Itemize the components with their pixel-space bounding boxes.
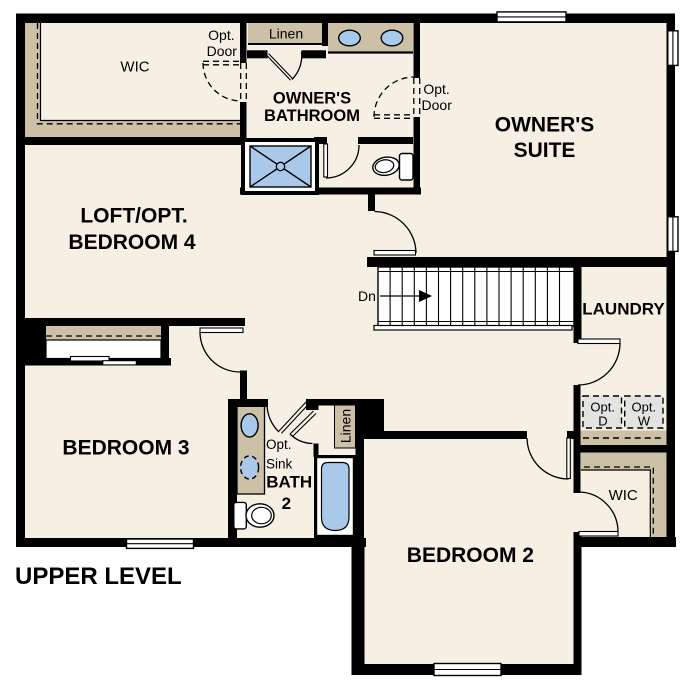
svg-text:W: W: [638, 414, 651, 429]
svg-text:Door: Door: [422, 97, 453, 113]
svg-text:WIC: WIC: [609, 487, 638, 504]
svg-text:LAUNDRY: LAUNDRY: [582, 300, 665, 319]
svg-text:WIC: WIC: [120, 59, 149, 76]
svg-text:Linen: Linen: [269, 26, 303, 42]
svg-text:BEDROOM 4: BEDROOM 4: [68, 231, 196, 254]
svg-text:OWNER'S: OWNER'S: [495, 114, 595, 137]
svg-text:2: 2: [282, 494, 291, 513]
svg-text:BEDROOM 2: BEDROOM 2: [407, 544, 534, 567]
svg-text:SUITE: SUITE: [514, 139, 576, 162]
svg-text:Linen: Linen: [338, 409, 354, 443]
svg-text:Opt.: Opt.: [590, 400, 615, 415]
svg-text:BATH: BATH: [266, 473, 312, 492]
svg-text:Sink: Sink: [266, 457, 293, 472]
svg-text:Dn: Dn: [358, 288, 376, 304]
svg-text:LOFT/OPT.: LOFT/OPT.: [80, 205, 187, 228]
svg-text:D: D: [598, 414, 607, 429]
svg-text:Opt.: Opt.: [208, 27, 234, 43]
svg-text:BATHROOM: BATHROOM: [264, 107, 360, 125]
svg-text:Opt.: Opt.: [423, 81, 449, 97]
svg-text:BEDROOM 3: BEDROOM 3: [62, 437, 189, 460]
svg-text:Opt.: Opt.: [266, 437, 292, 452]
svg-text:UPPER LEVEL: UPPER LEVEL: [15, 563, 182, 590]
svg-text:Opt.: Opt.: [632, 400, 657, 415]
svg-text:OWNER'S: OWNER'S: [273, 90, 351, 108]
svg-text:Door: Door: [207, 43, 238, 59]
